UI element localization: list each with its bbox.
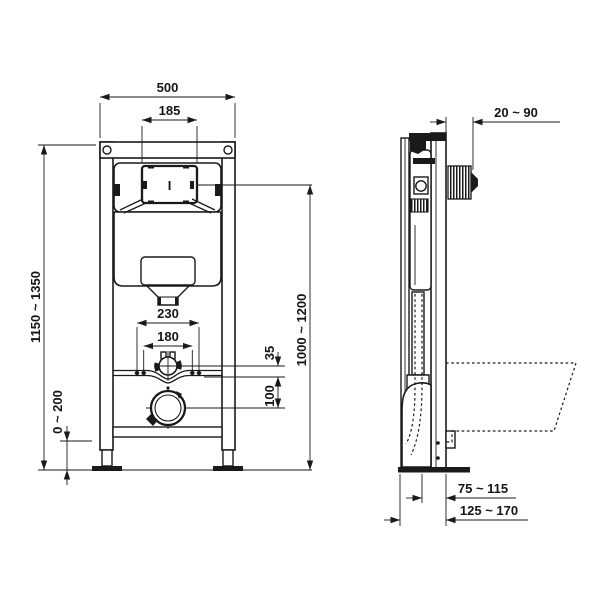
- side-base-plate: [398, 467, 470, 473]
- dim-outlet-depth: 75 ~ 115: [458, 481, 508, 496]
- cistern-outlet-funnel: [147, 286, 189, 305]
- waste-outlet: [146, 387, 190, 429]
- lower-cross-bar: [113, 427, 222, 437]
- foot-left: [102, 450, 112, 466]
- dim-fixing-inner: 180: [157, 329, 179, 344]
- dim-flush-offset: 35: [262, 346, 277, 360]
- flush-bend-pipe: [448, 166, 471, 199]
- frame-right-rail: [222, 142, 235, 450]
- dim-bend-protrusion: 20 ~ 90: [494, 105, 538, 120]
- outlet-bend-housing: [402, 383, 431, 467]
- top-fixing-hole-left: [103, 146, 111, 154]
- bracket-right: [215, 184, 221, 196]
- dim-frame-height: 1150 ~ 1350: [28, 271, 43, 343]
- dim-foot-adjust: 0 ~ 200: [50, 390, 65, 434]
- dim-outlet-offset: 100: [262, 385, 277, 407]
- foot-right: [223, 450, 233, 466]
- front-view: I: [28, 80, 312, 485]
- toilet-pan-outline: [446, 363, 576, 442]
- technical-drawing-canvas: I: [0, 0, 600, 600]
- bracket-left: [114, 184, 120, 196]
- side-view: 20 ~ 90 75 ~ 115 125 ~ 170: [384, 105, 576, 526]
- frame-top-bar: [100, 142, 235, 158]
- top-fixing-hole-right: [224, 146, 232, 154]
- supply-hose: [411, 199, 428, 212]
- side-cistern-profile: [410, 150, 431, 290]
- flush-plate-mark: I: [168, 178, 172, 193]
- frame-left-rail: [100, 142, 113, 450]
- dim-plate-height: 1000 ~ 1200: [294, 294, 309, 367]
- dim-frame-width: 500: [157, 80, 179, 95]
- pan-bracket: [446, 431, 455, 448]
- dim-fixing-outer: 230: [157, 306, 179, 321]
- top-bracket: [409, 133, 446, 141]
- installation-diagram: I: [0, 0, 600, 600]
- dim-frame-depth: 125 ~ 170: [460, 503, 518, 518]
- dim-flush-plate-width: 185: [159, 103, 181, 118]
- inlet-valve: [416, 181, 426, 191]
- inspection-window: [141, 257, 195, 285]
- side-front-rail: [431, 133, 446, 468]
- base-plate-left: [92, 466, 122, 471]
- base-plate-right: [213, 466, 243, 471]
